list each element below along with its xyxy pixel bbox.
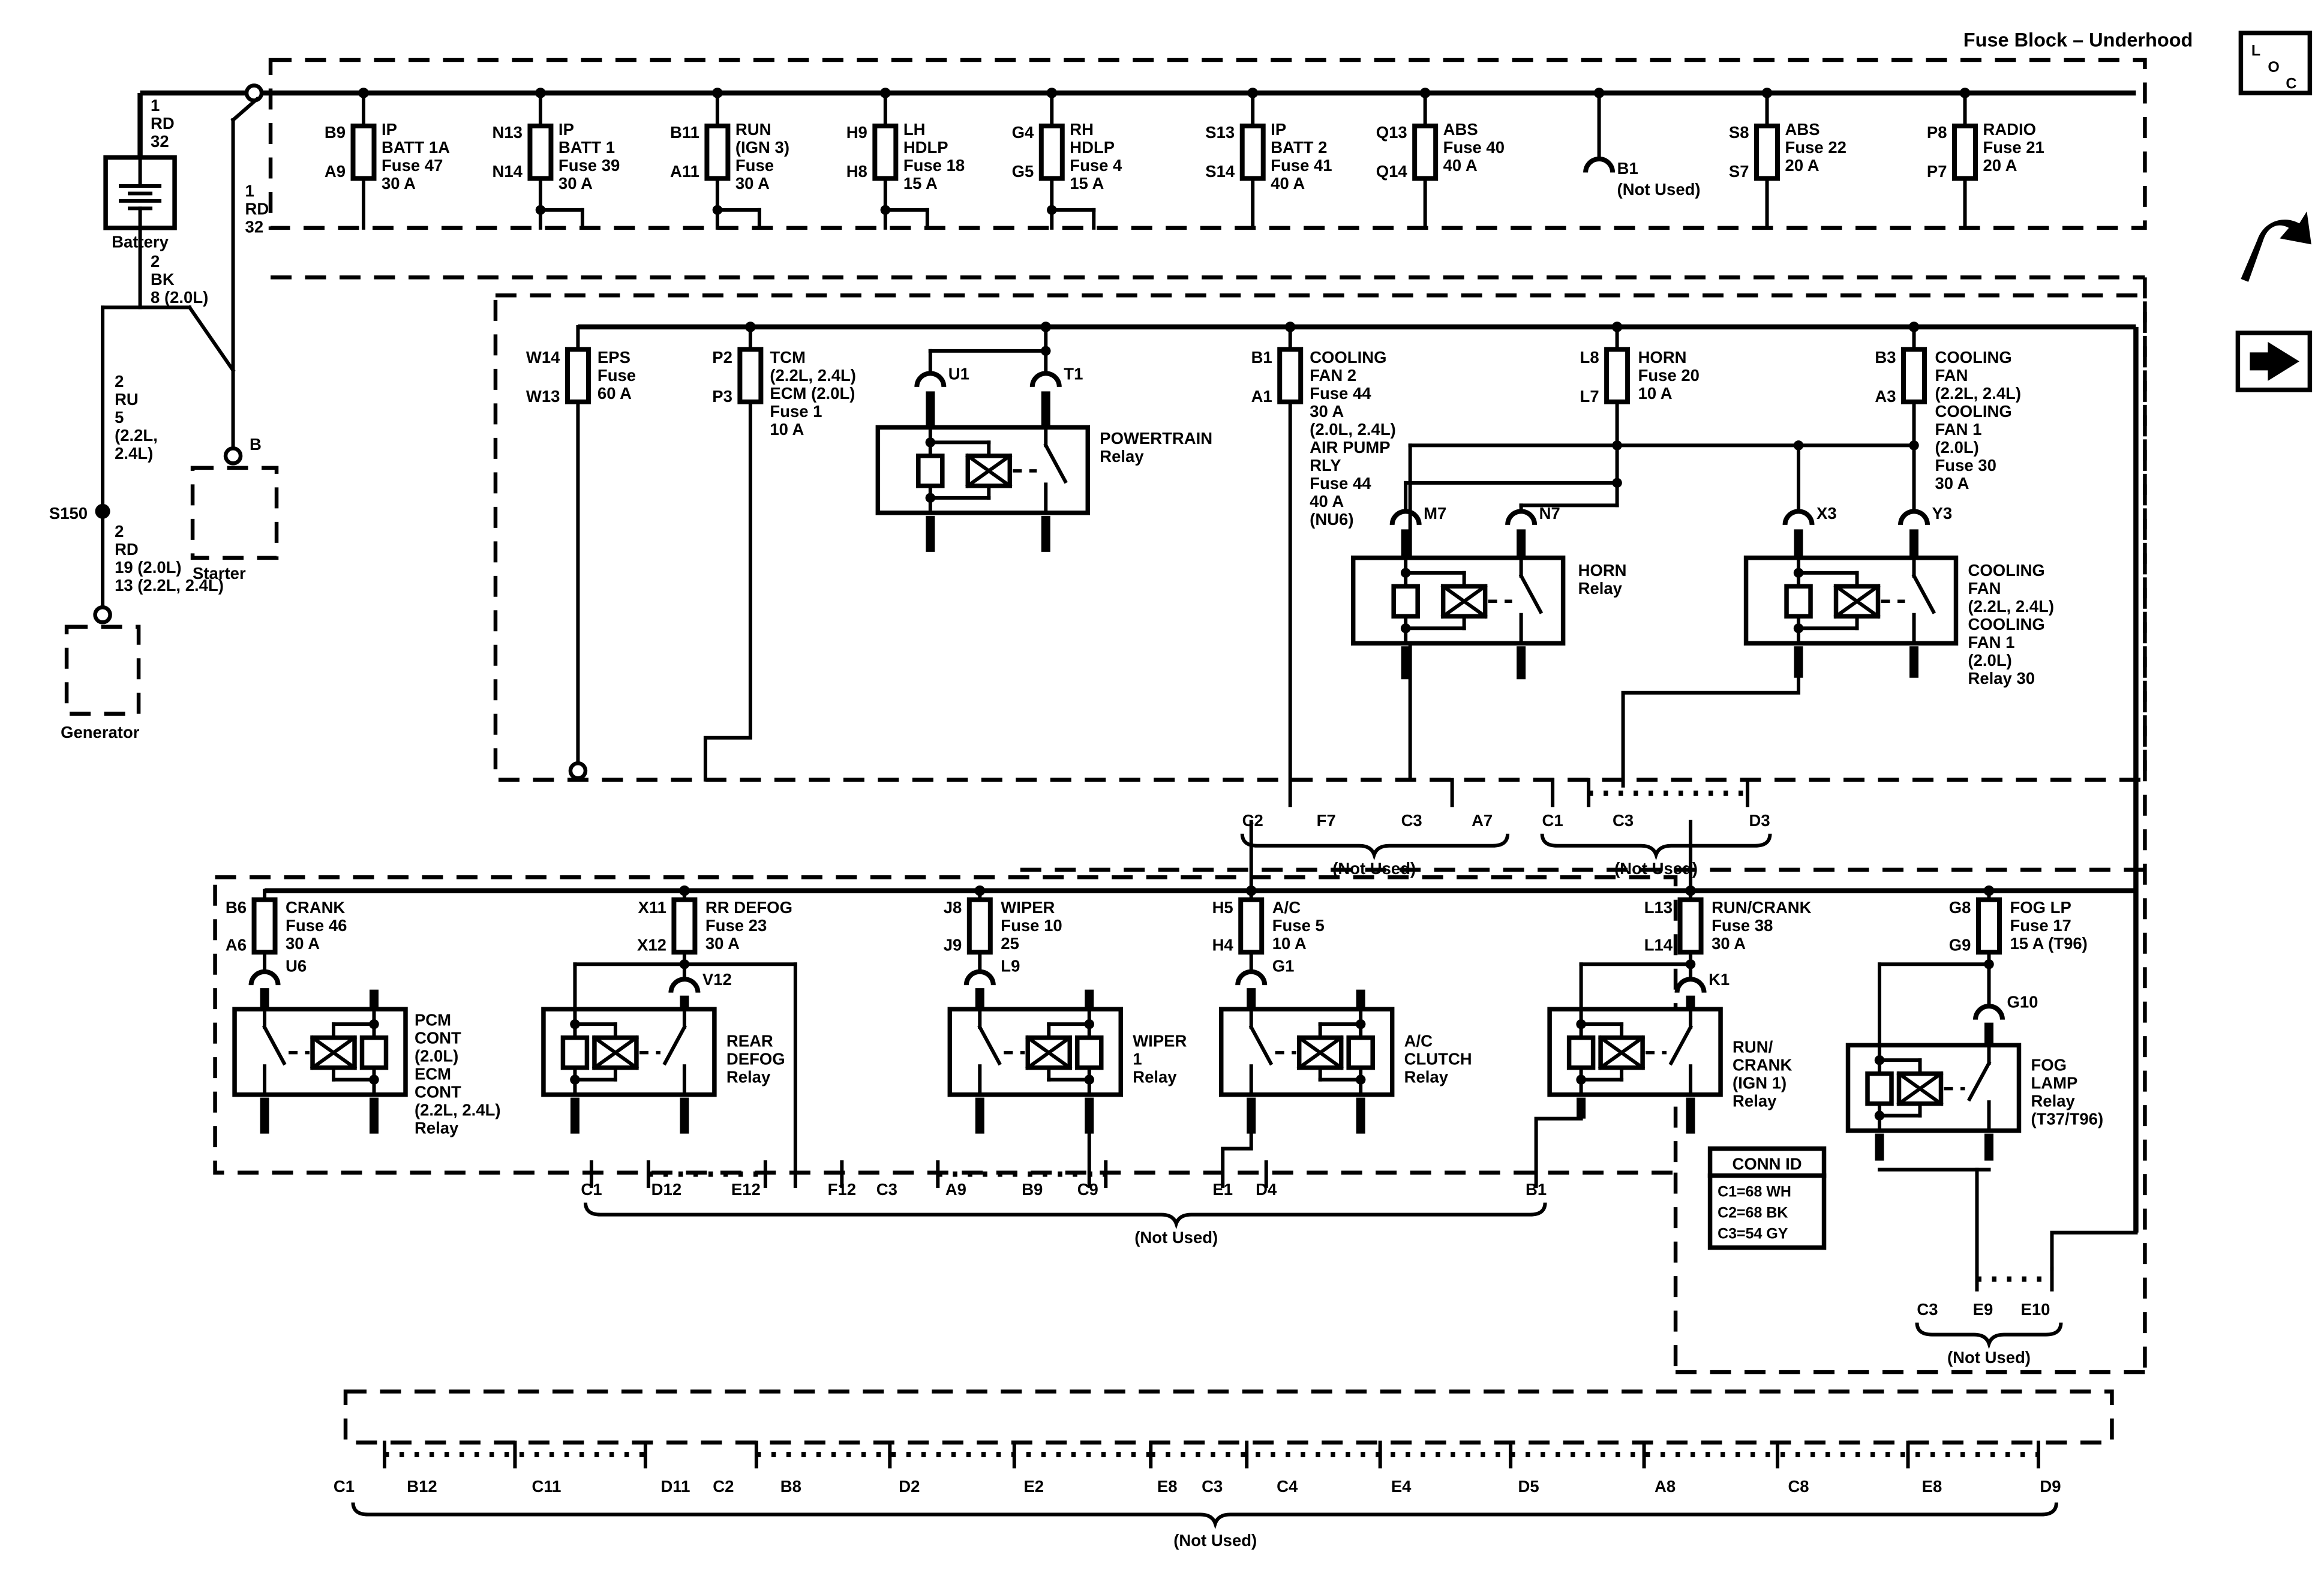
section-3: B6 A6 CRANK Fuse 46 30 A U6 PCM CONT (2.… bbox=[226, 822, 2136, 1269]
relay-label: CONT bbox=[415, 1029, 461, 1047]
pin-label: G8 bbox=[1949, 898, 1971, 917]
relay-pin-label: X3 bbox=[1816, 504, 1837, 523]
relay-label: Relay bbox=[1100, 447, 1144, 466]
fuse-desc: RH bbox=[1070, 120, 1094, 139]
fuse-run-ign3: B11 A11 RUN (IGN 3) Fuse 30 A bbox=[670, 88, 789, 228]
wire-label: 2.4L) bbox=[115, 444, 153, 463]
connector-group-3: C1 D12 E12 F12 C3 A9 B9 C9 E1 D4 B1 (Not… bbox=[581, 1162, 1547, 1247]
pin-label: B6 bbox=[226, 898, 247, 917]
fuse-desc: (2.0L) bbox=[1935, 438, 1979, 457]
relay-label: (2.2L, 2.4L) bbox=[415, 1101, 501, 1119]
relay-label: (2.0L) bbox=[1968, 651, 2011, 670]
fuse-desc: (NU6) bbox=[1310, 510, 1353, 529]
pin-label: S14 bbox=[1205, 162, 1235, 181]
stub-b1-not-used: B1 (Not Used) bbox=[1586, 88, 1700, 199]
relay-label: REAR bbox=[726, 1032, 773, 1050]
relay-label: DEFOG bbox=[726, 1050, 785, 1068]
pin-label: G9 bbox=[1949, 936, 1971, 954]
fuse-desc: 30 A bbox=[735, 174, 770, 193]
fuse-desc: Fuse 1 bbox=[770, 402, 822, 421]
fuse-lh-hdlp: H9 H8 LH HDLP Fuse 18 15 A bbox=[846, 88, 965, 228]
fuse-desc: 25 bbox=[1001, 934, 1019, 953]
cavity-label: C2 bbox=[713, 1477, 734, 1496]
right-arrow-icon bbox=[2238, 333, 2310, 390]
loc-letter: C bbox=[2286, 75, 2296, 92]
fuse-desc: 10 A bbox=[1272, 934, 1307, 953]
pin-label: J8 bbox=[944, 898, 962, 917]
pin-label: N13 bbox=[493, 123, 523, 142]
cavity-label: E9 bbox=[1973, 1300, 1993, 1319]
fuse-desc: Fuse 20 bbox=[1638, 366, 1700, 385]
battery-branch: 1 RD 32 Battery 1 RD 32 B Starter 2 BK 8… bbox=[49, 85, 277, 741]
fuse-radio: P8 P7 RADIO Fuse 21 20 A bbox=[1927, 88, 2044, 228]
fuse-rh-hdlp: G4 G5 RH HDLP Fuse 4 15 A bbox=[1012, 88, 1122, 228]
fuse-ac: H5 H4 A/C Fuse 5 10 A G1 bbox=[1212, 898, 1325, 985]
fuse-desc: 30 A bbox=[705, 934, 740, 953]
wire-label: 2 bbox=[115, 522, 124, 541]
fuse-desc: FAN bbox=[1935, 366, 1968, 385]
fuse-desc: (IGN 3) bbox=[735, 138, 789, 157]
strip-ticks bbox=[385, 1443, 2038, 1467]
cavity-label: E12 bbox=[731, 1180, 761, 1199]
wire-label: 5 bbox=[115, 408, 124, 427]
connector-group-2: C1 C3 D3 (Not Used) bbox=[1542, 780, 1770, 878]
pin-label: H9 bbox=[846, 123, 867, 142]
fuse-desc: 30 A bbox=[382, 174, 416, 193]
cavity-label: C3 bbox=[1401, 811, 1422, 830]
fuse-desc: WIPER bbox=[1001, 898, 1055, 917]
cavity-label: A7 bbox=[1472, 811, 1493, 830]
pin-label: A1 bbox=[1251, 387, 1272, 406]
relay-label: POWERTRAIN bbox=[1100, 429, 1212, 448]
fuse-desc: Fuse 23 bbox=[705, 916, 767, 935]
fuse-desc: Fuse 47 bbox=[382, 156, 443, 175]
cavity-label: C1 bbox=[334, 1477, 355, 1496]
pin-label: B9 bbox=[325, 123, 346, 142]
fuse-desc: Fuse 41 bbox=[1271, 156, 1332, 175]
fuse-desc: ECM (2.0L) bbox=[770, 384, 855, 403]
fuse-desc: BATT 1A bbox=[382, 138, 450, 157]
fuse-desc: HDLP bbox=[903, 138, 948, 157]
terminal-b-label: B bbox=[250, 435, 262, 454]
relay-pin-label: L9 bbox=[1001, 957, 1020, 975]
wire-label: RD bbox=[151, 114, 175, 133]
fuse-desc: (2.0L, 2.4L) bbox=[1310, 420, 1396, 439]
fuse-desc: 10 A bbox=[770, 420, 804, 439]
splice-ring bbox=[247, 85, 262, 100]
wire-label: 2 bbox=[151, 252, 160, 271]
starter-box bbox=[193, 468, 277, 558]
cavity-label: C1 bbox=[1542, 811, 1563, 830]
relay-label: Relay bbox=[1133, 1068, 1177, 1086]
pin-label: B11 bbox=[670, 123, 699, 142]
fuse-desc: RADIO bbox=[1983, 120, 2036, 139]
cavity-label: C11 bbox=[532, 1477, 561, 1496]
relay-label: Relay bbox=[726, 1068, 771, 1086]
fuse-desc: 15 A bbox=[1070, 174, 1104, 193]
wire-label: 1 bbox=[245, 181, 254, 200]
battery-label: Battery bbox=[112, 232, 169, 251]
fuse-desc: Fuse 30 bbox=[1935, 456, 1996, 475]
fuse-desc: Fuse bbox=[597, 366, 636, 385]
fuse-desc: Fuse 4 bbox=[1070, 156, 1122, 175]
pin-label: B1 bbox=[1617, 159, 1638, 178]
relay-label: Relay bbox=[415, 1119, 459, 1137]
conn-id-row: C3=54 GY bbox=[1718, 1226, 1788, 1242]
fuse-desc: BATT 2 bbox=[1271, 138, 1327, 157]
relay-pin-label: T1 bbox=[1064, 364, 1083, 383]
fuse-desc: AIR PUMP bbox=[1310, 438, 1390, 457]
conn-id-row: C1=68 WH bbox=[1718, 1184, 1791, 1200]
relay-pin-label: U6 bbox=[286, 957, 307, 975]
wire-label: 2 bbox=[115, 372, 124, 391]
fuse-desc: 30 A bbox=[559, 174, 593, 193]
not-used-note: (Not Used) bbox=[1947, 1348, 2031, 1367]
relay-label: (T37/T96) bbox=[2031, 1110, 2103, 1128]
relay-pin-label: Y3 bbox=[1932, 504, 1953, 523]
pin-label: A9 bbox=[325, 162, 346, 181]
pin-label: X11 bbox=[638, 898, 666, 917]
wire-label: 32 bbox=[245, 217, 264, 236]
pcm-ecm-cont-relay: PCM CONT (2.0L) ECM CONT (2.2L, 2.4L) Re… bbox=[235, 988, 501, 1137]
pin-label: P3 bbox=[712, 387, 732, 406]
pin-label: X12 bbox=[637, 936, 666, 954]
wire-label: 32 bbox=[151, 132, 169, 151]
pin-label: P7 bbox=[1927, 162, 1947, 181]
pin-label: Q13 bbox=[1376, 123, 1407, 142]
relay-label: HORN bbox=[1578, 561, 1627, 580]
wire-label: 13 (2.2L, 2.4L) bbox=[115, 576, 224, 595]
not-used-note: (Not Used) bbox=[1134, 1228, 1218, 1247]
cavity-label: E10 bbox=[2021, 1300, 2050, 1319]
pin-label: S8 bbox=[1729, 123, 1749, 142]
fuse-desc: IP bbox=[382, 120, 397, 139]
cavity-label: B8 bbox=[780, 1477, 801, 1496]
fuse-desc: (2.2L, 2.4L) bbox=[770, 366, 856, 385]
service-hook-arrow-icon bbox=[2241, 211, 2311, 281]
relay-label: (2.0L) bbox=[415, 1047, 458, 1065]
fuse-desc: Fuse 40 bbox=[1443, 138, 1505, 157]
fuse-desc: RUN bbox=[735, 120, 771, 139]
fuse-desc: Fuse 10 bbox=[1001, 916, 1062, 935]
fuse-cooling-fan: B3 A3 COOLING FAN (2.2L, 2.4L) COOLING F… bbox=[1875, 322, 2021, 511]
cavity-label: F7 bbox=[1317, 811, 1336, 830]
loc-letter: O bbox=[2268, 59, 2279, 76]
relay-label: FOG bbox=[2031, 1056, 2067, 1074]
fuse-run-crank: L13 L14 RUN/CRANK Fuse 38 30 A K1 bbox=[1581, 898, 1812, 1009]
relay-label: ECM bbox=[415, 1065, 451, 1083]
cavity-label: D9 bbox=[2040, 1477, 2061, 1496]
relay-pin-label: G1 bbox=[1272, 957, 1295, 975]
fuse-desc: Fuse 21 bbox=[1983, 138, 2044, 157]
splice-s150-dot bbox=[95, 504, 110, 519]
fuse-desc: FAN 1 bbox=[1935, 420, 1982, 439]
fuse-desc: IP bbox=[1271, 120, 1286, 139]
pin-label: H4 bbox=[1212, 936, 1234, 954]
cavity-label: E8 bbox=[1922, 1477, 1942, 1496]
fuse-desc: Fuse 18 bbox=[903, 156, 965, 175]
fuse-desc: Fuse 46 bbox=[286, 916, 347, 935]
connector-group-1: C2 F7 C3 A7 (Not Used) bbox=[1242, 780, 1508, 878]
connector-group-5: C1 B12 C11 D11 C2 B8 D2 E2 E8 C3 C4 E4 D… bbox=[334, 1443, 2061, 1550]
loc-letter: L bbox=[2251, 42, 2260, 59]
relay-label: Relay bbox=[2031, 1092, 2075, 1110]
fuse-ip-batt-1: N13 N14 IP BATT 1 Fuse 39 30 A bbox=[493, 88, 620, 228]
fuse-desc: 30 A bbox=[1310, 402, 1344, 421]
pin-label: W13 bbox=[526, 387, 560, 406]
pin-label: L13 bbox=[1644, 898, 1673, 917]
relay-pin-label: K1 bbox=[1709, 970, 1730, 989]
fuse-desc: 40 A bbox=[1271, 174, 1305, 193]
fuse-desc: 15 A bbox=[903, 174, 938, 193]
relay-pin-label: V12 bbox=[702, 970, 732, 989]
wire-label: RD bbox=[115, 540, 139, 559]
cavity-label: D11 bbox=[660, 1477, 690, 1496]
pin-label: W14 bbox=[526, 348, 560, 367]
fuse-desc: 40 A bbox=[1443, 156, 1478, 175]
pin-label: J9 bbox=[944, 936, 962, 954]
fuse-desc: HDLP bbox=[1070, 138, 1115, 157]
fuse-desc: FAN 2 bbox=[1310, 366, 1356, 385]
pin-label: Q14 bbox=[1376, 162, 1408, 181]
pin-label: L7 bbox=[1580, 387, 1599, 406]
fuse-desc: COOLING bbox=[1310, 348, 1386, 367]
not-used-note: (Not Used) bbox=[1614, 859, 1698, 878]
relay-label: FAN bbox=[1968, 579, 2001, 598]
conn-id-row: C2=68 BK bbox=[1718, 1205, 1788, 1221]
fuse-desc: COOLING bbox=[1935, 348, 2012, 367]
wire-label: 8 (2.0L) bbox=[151, 288, 208, 307]
fuse-desc: BATT 1 bbox=[559, 138, 615, 157]
pin-label: G4 bbox=[1012, 123, 1034, 142]
pin-label: H8 bbox=[846, 162, 867, 181]
fuse-desc: HORN bbox=[1638, 348, 1687, 367]
wiring-diagram-page: 1 RD 32 Battery 1 RD 32 B Starter 2 BK 8… bbox=[0, 0, 2324, 1573]
fuse-desc: A/C bbox=[1272, 898, 1301, 917]
cavity-label: C3 bbox=[1202, 1477, 1223, 1496]
fuse-desc: RR DEFOG bbox=[705, 898, 792, 917]
relay-label: (IGN 1) bbox=[1733, 1074, 1786, 1092]
fuse-desc: Fuse 38 bbox=[1712, 916, 1773, 935]
relay-label: Relay bbox=[1578, 579, 1623, 598]
relay-label: RUN/ bbox=[1733, 1038, 1773, 1056]
cavity-label: E8 bbox=[1157, 1477, 1178, 1496]
cavity-label: C1 bbox=[581, 1180, 602, 1199]
fuse-abs-22: S8 S7 ABS Fuse 22 20 A bbox=[1729, 88, 1846, 228]
cavity-label: F12 bbox=[828, 1180, 856, 1199]
fuse-horn: L8 L7 HORN Fuse 20 10 A bbox=[1580, 322, 1700, 505]
fuse-desc: 10 A bbox=[1638, 384, 1673, 403]
fuse-desc: 15 A (T96) bbox=[2010, 934, 2087, 953]
cavity-label: D5 bbox=[1518, 1477, 1539, 1496]
top-fuse-row: B9 A9 IP BATT 1A Fuse 47 30 A N13 N14 IP… bbox=[262, 88, 2136, 228]
pin-label: A11 bbox=[670, 162, 699, 181]
cavity-label: B1 bbox=[1526, 1180, 1547, 1199]
pin-label: L8 bbox=[1580, 348, 1599, 367]
cavity-label: B9 bbox=[1022, 1180, 1043, 1199]
fuse-desc: CRANK bbox=[286, 898, 345, 917]
fuse-desc: 40 A bbox=[1310, 492, 1344, 511]
fuse-desc: 20 A bbox=[1983, 156, 2017, 175]
wiring-diagram-canvas: 1 RD 32 Battery 1 RD 32 B Starter 2 BK 8… bbox=[0, 0, 2324, 1573]
starter-b-terminal bbox=[226, 448, 241, 463]
wire-label: (2.2L, bbox=[115, 426, 158, 445]
not-used-note: (Not Used) bbox=[1617, 180, 1701, 199]
cavity-label: D3 bbox=[1749, 811, 1770, 830]
page-title: Fuse Block – Underhood bbox=[1963, 29, 2193, 50]
fuse-wiper: J8 J9 WIPER Fuse 10 25 L9 bbox=[944, 891, 1062, 985]
fuse-desc: Fuse 44 bbox=[1310, 474, 1371, 493]
relay-label: PCM bbox=[415, 1011, 451, 1029]
wire-label: 1 bbox=[151, 96, 160, 115]
rear-defog-relay: REAR DEFOG Relay bbox=[544, 996, 785, 1134]
relay-label: 1 bbox=[1133, 1050, 1142, 1068]
fuse-desc: (2.2L, 2.4L) bbox=[1935, 384, 2022, 403]
pin-label: B1 bbox=[1251, 348, 1272, 367]
fuse-desc: IP bbox=[559, 120, 574, 139]
fuse-desc: RLY bbox=[1310, 456, 1341, 475]
fuse-tcm-ecm: P2 P3 TCM (2.2L, 2.4L) ECM (2.0L) Fuse 1… bbox=[705, 322, 856, 780]
conn-id-box: CONN ID C1=68 WH C2=68 BK C3=54 GY bbox=[1710, 1149, 1824, 1248]
cavity-label: C8 bbox=[1788, 1477, 1809, 1496]
relay-label: Relay bbox=[1733, 1092, 1777, 1110]
horn-relay: M7 N7 HORN Relay bbox=[1353, 504, 1627, 679]
pin-label: P2 bbox=[712, 348, 732, 367]
pin-label: P8 bbox=[1927, 123, 1947, 142]
relay-label: Relay bbox=[1404, 1068, 1449, 1086]
fuse-desc: 30 A bbox=[1935, 474, 1969, 493]
fuse-fog-lp: G8 G9 FOG LP Fuse 17 15 A (T96) G10 bbox=[1879, 891, 2088, 1045]
cavity-label: C3 bbox=[1917, 1300, 1938, 1319]
wiper-1-relay: WIPER 1 Relay bbox=[950, 988, 1187, 1186]
wire-label: BK bbox=[151, 270, 175, 289]
relay-label: Relay 30 bbox=[1968, 669, 2035, 688]
powertrain-relay: U1 T1 POWERTRAIN Relay bbox=[878, 322, 1212, 552]
relay-pin-label: G10 bbox=[2007, 993, 2038, 1011]
relay-label: A/C bbox=[1404, 1032, 1433, 1050]
fuse-desc: 30 A bbox=[1712, 934, 1746, 953]
fuse-desc: 30 A bbox=[286, 934, 320, 953]
relay-label: CLUTCH bbox=[1404, 1050, 1472, 1068]
cavity-label: D12 bbox=[651, 1180, 681, 1199]
fuse-ip-batt-1a: B9 A9 IP BATT 1A Fuse 47 30 A bbox=[325, 88, 450, 228]
cooling-fan-relay: X3 Y3 COOLING FAN (2.2L, 2.4L) COOLING F… bbox=[1623, 504, 2054, 786]
fuse-desc: 60 A bbox=[597, 384, 632, 403]
fuse-ip-batt-2: S13 S14 IP BATT 2 Fuse 41 40 A bbox=[1205, 88, 1332, 228]
fuse-desc: ABS bbox=[1785, 120, 1820, 139]
fuse-desc: Fuse 5 bbox=[1272, 916, 1325, 935]
conn-id-title: CONN ID bbox=[1733, 1155, 1802, 1173]
fuse-desc: EPS bbox=[597, 348, 630, 367]
connector-group-4: C3 E9 E10 (Not Used) bbox=[1917, 1269, 2061, 1367]
not-used-note: (Not Used) bbox=[1332, 859, 1416, 878]
wire-label: RU bbox=[115, 390, 139, 409]
relay-label: LAMP bbox=[2031, 1074, 2077, 1092]
cavity-label: D4 bbox=[1256, 1180, 1277, 1199]
fuse-desc: Fuse bbox=[735, 156, 774, 175]
loc-icon: L O C bbox=[2241, 33, 2310, 93]
cavity-label: C4 bbox=[1277, 1477, 1298, 1496]
cavity-label: B12 bbox=[407, 1477, 437, 1496]
cavity-label: C3 bbox=[1613, 811, 1634, 830]
fuse-desc: LH bbox=[903, 120, 926, 139]
pin-label: G5 bbox=[1012, 162, 1034, 181]
pin-label: N14 bbox=[493, 162, 523, 181]
relay-pin-label: N7 bbox=[1539, 504, 1560, 523]
fuse-desc: Fuse 22 bbox=[1785, 138, 1846, 157]
fuse-crank: B6 A6 CRANK Fuse 46 30 A U6 bbox=[226, 891, 347, 985]
pin-label: A6 bbox=[226, 936, 247, 954]
cavity-label: C9 bbox=[1077, 1180, 1098, 1199]
relay-label: WIPER bbox=[1133, 1032, 1187, 1050]
pin-label: A3 bbox=[1875, 387, 1896, 406]
relay-label: CRANK bbox=[1733, 1056, 1792, 1074]
pin-label: S7 bbox=[1729, 162, 1749, 181]
relay-label: COOLING bbox=[1968, 561, 2044, 580]
relay-pin-label: M7 bbox=[1424, 504, 1446, 523]
fuse-desc: ABS bbox=[1443, 120, 1478, 139]
fuse-desc: TCM bbox=[770, 348, 806, 367]
fuse-desc: FOG LP bbox=[2010, 898, 2071, 917]
cavity-label: E1 bbox=[1212, 1180, 1233, 1199]
fuse-desc: Fuse 17 bbox=[2010, 916, 2071, 935]
generator-label: Generator bbox=[61, 723, 140, 742]
pin-label: H5 bbox=[1212, 898, 1233, 917]
relay-label: (2.2L, 2.4L) bbox=[1968, 597, 2054, 616]
pin-label: L14 bbox=[1644, 936, 1673, 954]
fuse-desc: RUN/CRANK bbox=[1712, 898, 1812, 917]
pin-label: B3 bbox=[1875, 348, 1896, 367]
cavity-label: A9 bbox=[945, 1180, 966, 1199]
cavity-label: E2 bbox=[1023, 1477, 1044, 1496]
fuse-desc: 20 A bbox=[1785, 156, 1819, 175]
not-used-note: (Not Used) bbox=[1173, 1531, 1257, 1550]
relay-label: CONT bbox=[415, 1083, 461, 1101]
fuse-eps: W14 W13 EPS Fuse 60 A bbox=[526, 327, 636, 778]
splice-s150-label: S150 bbox=[49, 504, 88, 523]
wire-label: 19 (2.0L) bbox=[115, 558, 182, 577]
pin-label: S13 bbox=[1205, 123, 1235, 142]
relay-label: COOLING bbox=[1968, 615, 2044, 634]
cavity-label: C3 bbox=[876, 1180, 897, 1199]
fuse-desc: Fuse 39 bbox=[559, 156, 620, 175]
cavity-label: A8 bbox=[1655, 1477, 1676, 1496]
fuse-desc: Fuse 44 bbox=[1310, 384, 1371, 403]
relay-label: FAN 1 bbox=[1968, 633, 2014, 652]
relay-pin-label: U1 bbox=[948, 364, 969, 383]
fuse-abs-40: Q13 Q14 ABS Fuse 40 40 A bbox=[1376, 88, 1505, 228]
fuse-desc: COOLING bbox=[1935, 402, 2012, 421]
generator-box bbox=[67, 627, 139, 714]
cavity-label: E4 bbox=[1391, 1477, 1412, 1496]
generator-terminal bbox=[95, 607, 110, 622]
wire-label: RD bbox=[245, 199, 269, 218]
ac-clutch-relay: A/C CLUTCH Relay bbox=[1221, 988, 1472, 1186]
cavity-label: D2 bbox=[899, 1477, 920, 1496]
